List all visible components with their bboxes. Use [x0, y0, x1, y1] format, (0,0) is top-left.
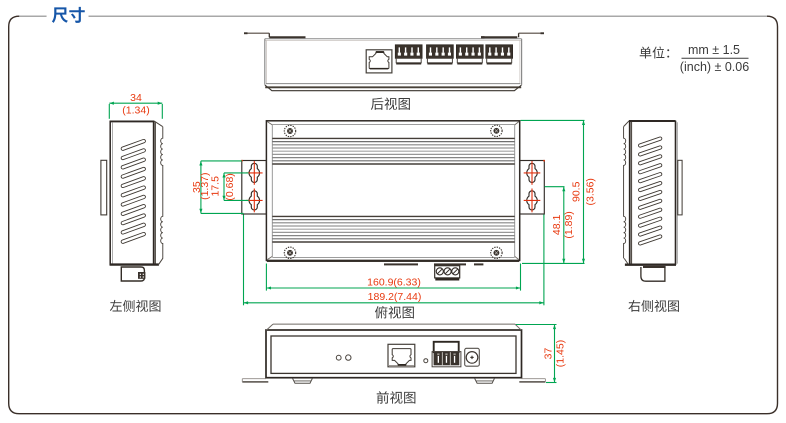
- svg-text:160.9(6.33): 160.9(6.33): [367, 277, 421, 289]
- svg-text:(inch) ± 0.06: (inch) ± 0.06: [680, 60, 749, 74]
- svg-text:(1.34): (1.34): [122, 105, 149, 117]
- svg-text:37: 37: [542, 348, 554, 360]
- svg-text:(0.68): (0.68): [224, 173, 236, 200]
- svg-text:(1.89): (1.89): [563, 211, 575, 238]
- svg-text:(3.56): (3.56): [584, 178, 596, 205]
- svg-text:34: 34: [130, 92, 142, 104]
- svg-text:(1.45): (1.45): [554, 340, 566, 367]
- svg-text:90.5: 90.5: [570, 181, 582, 202]
- svg-text:189.2(7.44): 189.2(7.44): [368, 291, 422, 303]
- svg-text:17.5: 17.5: [210, 176, 222, 197]
- svg-text:48.1: 48.1: [551, 215, 563, 236]
- svg-text:mm ± 1.5: mm ± 1.5: [688, 43, 740, 57]
